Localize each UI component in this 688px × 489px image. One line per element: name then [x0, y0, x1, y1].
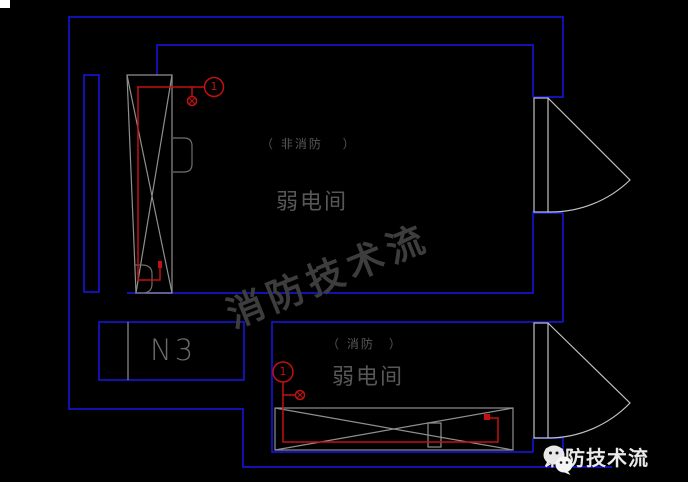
brand-logo: 消防技术流	[541, 442, 649, 471]
top-cabinet-handles	[135, 138, 192, 293]
bottom-cabinet	[275, 408, 513, 450]
bottom-door-swing	[548, 323, 630, 438]
wechat-icon	[541, 442, 575, 478]
bottom-room-type-label: （ 消防 ）	[327, 335, 403, 352]
bottom-room-name: 弱电间	[332, 359, 404, 391]
circuit-endpoint	[158, 261, 162, 268]
top-room-name: 弱电间	[276, 184, 348, 216]
page-margin	[0, 482, 688, 489]
top-door	[534, 98, 630, 212]
top-circuit	[137, 78, 224, 281]
wall-column	[84, 75, 99, 292]
scan-artifact	[0, 0, 10, 8]
top-door-leaf	[534, 98, 548, 212]
bottom-circuit-number: 1	[280, 365, 287, 378]
cad-floorplan-image: （ 非消防 ） 弱电间 （ 消防 ） 弱电间 N3 1 1 消防技术流 消防技术…	[0, 0, 688, 489]
bottom-room-walls	[272, 322, 563, 452]
bottom-door-leaf	[534, 323, 548, 438]
plan-background: （ 非消防 ） 弱电间 （ 消防 ） 弱电间 N3 1 1 消防技术流 消防技术…	[0, 0, 688, 482]
bottom-door	[534, 323, 630, 438]
panel-label: N3	[150, 333, 196, 367]
top-room-type-label: （ 非消防 ）	[261, 135, 357, 152]
top-circuit-number: 1	[211, 80, 218, 93]
top-door-swing	[548, 98, 630, 212]
top-cabinet	[127, 75, 172, 293]
circuit-endpoint	[484, 414, 490, 420]
